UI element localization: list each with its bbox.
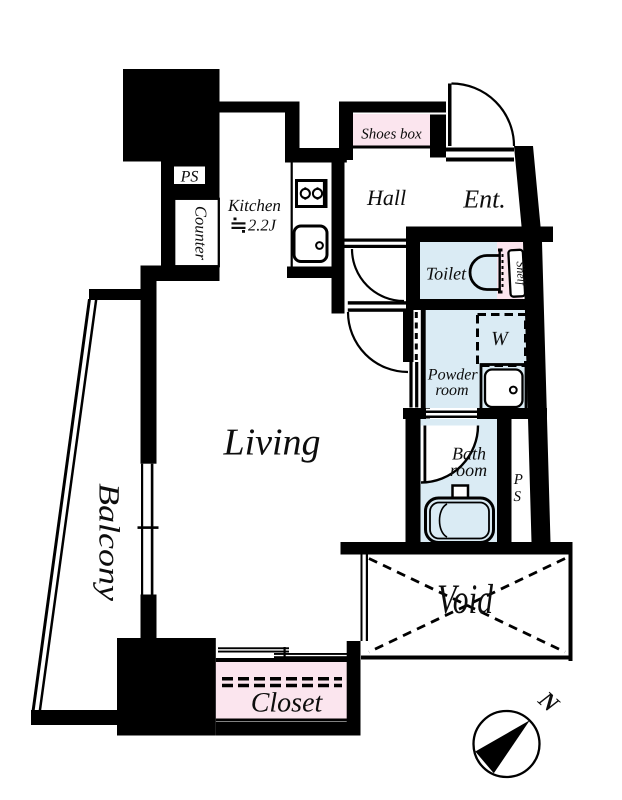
svg-text:room: room <box>450 460 487 480</box>
svg-text:Hall: Hall <box>366 185 406 210</box>
svg-text:Void: Void <box>437 577 494 623</box>
svg-text:Ent.: Ent. <box>462 185 506 214</box>
svg-text:Living: Living <box>222 422 320 464</box>
svg-text:Shelf: Shelf <box>514 261 529 287</box>
svg-text:P: P <box>513 472 523 488</box>
svg-text:Counter: Counter <box>192 206 211 261</box>
svg-text:room: room <box>435 382 468 399</box>
svg-text:Shoes box: Shoes box <box>361 127 422 143</box>
svg-text:Closet: Closet <box>251 688 324 719</box>
svg-text:Powder: Powder <box>427 367 479 384</box>
svg-text:2.2J: 2.2J <box>248 216 277 235</box>
svg-text:PS: PS <box>180 169 199 186</box>
svg-text:Balcony: Balcony <box>93 483 126 601</box>
svg-text:Toilet: Toilet <box>426 264 467 284</box>
svg-text:W: W <box>491 328 510 350</box>
svg-text:Kitchen: Kitchen <box>227 196 281 215</box>
svg-text:S: S <box>514 489 522 505</box>
